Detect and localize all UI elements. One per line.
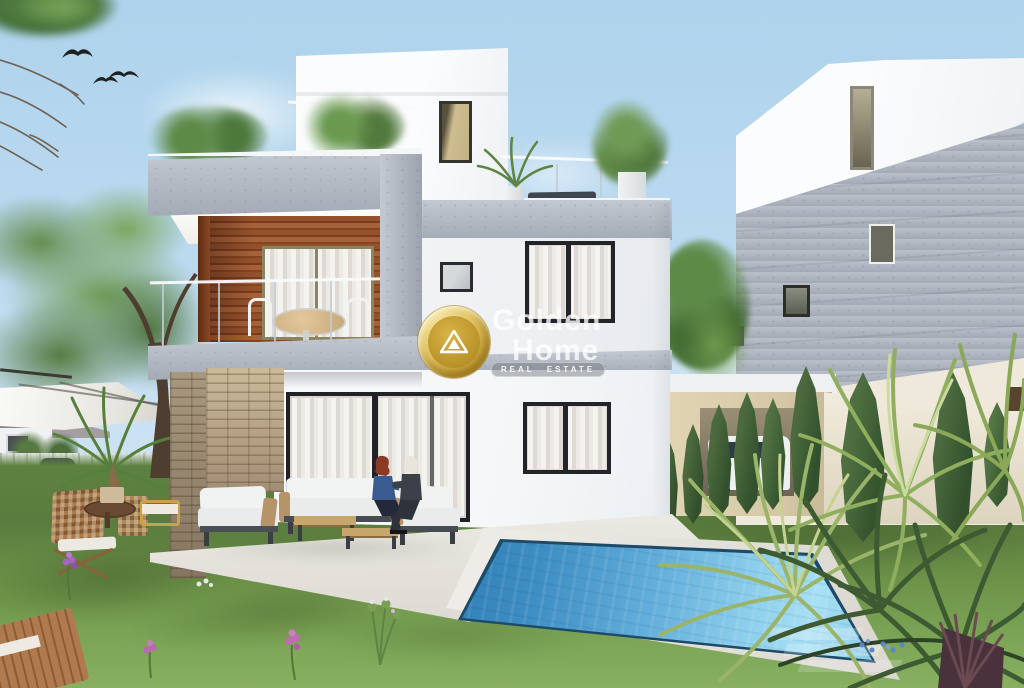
pink-flower bbox=[144, 640, 157, 678]
pink-flower bbox=[285, 630, 300, 681]
flowering-shrub bbox=[368, 597, 402, 665]
house-triangle-icon bbox=[440, 330, 468, 354]
watermark-logo: Golden Home Real Estate bbox=[414, 296, 634, 388]
white-flower bbox=[197, 579, 214, 626]
gold-circle-icon bbox=[418, 306, 490, 378]
yucca-plant bbox=[790, 350, 1010, 590]
watermark-tagline: Real Estate bbox=[491, 362, 605, 377]
terrace-palm bbox=[478, 138, 552, 186]
watermark-brand-top: Golden bbox=[492, 306, 601, 336]
villa-render-scene: Golden Home Real Estate bbox=[0, 0, 1024, 688]
purple-flower bbox=[63, 552, 78, 600]
